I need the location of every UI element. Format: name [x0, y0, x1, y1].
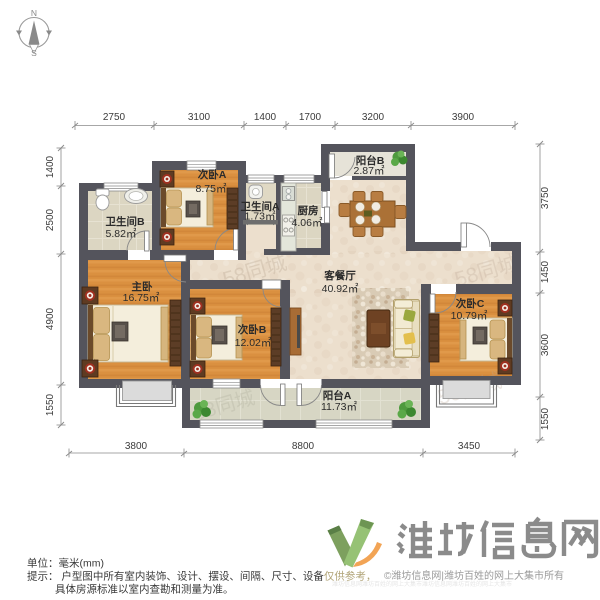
- svg-text:S: S: [31, 48, 37, 58]
- svg-text:4.06㎡: 4.06㎡: [292, 217, 323, 229]
- svg-text:单位：毫米(mm): 单位：毫米(mm): [27, 557, 104, 570]
- svg-text:潍坊信息网潍坊百姓的网上大集市潍坊信息网潍坊百姓的网上大集市: 潍坊信息网潍坊百姓的网上大集市潍坊信息网潍坊百姓的网上大集市: [332, 580, 512, 588]
- svg-text:次卧A: 次卧A: [198, 168, 227, 181]
- svg-text:16.75㎡: 16.75㎡: [123, 292, 160, 304]
- svg-text:11.73㎡: 11.73㎡: [321, 401, 357, 413]
- svg-text:3200: 3200: [362, 112, 385, 123]
- svg-text:3100: 3100: [188, 112, 211, 123]
- svg-text:客餐厅: 客餐厅: [323, 269, 356, 282]
- svg-text:5.82㎡: 5.82㎡: [106, 228, 137, 240]
- svg-text:次卧B: 次卧B: [238, 323, 267, 336]
- svg-text:2.87㎡: 2.87㎡: [354, 165, 385, 177]
- svg-text:3750: 3750: [540, 186, 551, 209]
- svg-text:8800: 8800: [292, 441, 315, 452]
- svg-text:3450: 3450: [458, 441, 481, 452]
- svg-text:8.75㎡: 8.75㎡: [196, 183, 227, 195]
- svg-text:2500: 2500: [45, 208, 56, 231]
- svg-text:1700: 1700: [299, 112, 322, 123]
- svg-text:卫生间B: 卫生间B: [105, 215, 144, 228]
- svg-text:40.92㎡: 40.92㎡: [322, 283, 359, 295]
- svg-text:2750: 2750: [103, 112, 126, 123]
- svg-text:1450: 1450: [540, 260, 551, 283]
- svg-text:1550: 1550: [540, 407, 551, 430]
- svg-text:1.73㎡: 1.73㎡: [245, 211, 276, 223]
- svg-text:©潍坊信息网|潍坊百姓的网上大集市所有: ©潍坊信息网|潍坊百姓的网上大集市所有: [384, 569, 564, 582]
- svg-text:3900: 3900: [452, 112, 475, 123]
- svg-text:次卧C: 次卧C: [456, 297, 485, 310]
- svg-text:12.02㎡: 12.02㎡: [235, 337, 272, 349]
- svg-text:3600: 3600: [540, 333, 551, 356]
- svg-text:1400: 1400: [254, 112, 277, 123]
- svg-text:厨房: 厨房: [298, 204, 319, 217]
- svg-text:1550: 1550: [45, 393, 56, 416]
- svg-text:1400: 1400: [45, 155, 56, 178]
- svg-text:具体房源标准以室内查勘和测量为准。: 具体房源标准以室内查勘和测量为准。: [55, 583, 234, 596]
- svg-text:10.79㎡: 10.79㎡: [451, 310, 488, 322]
- svg-text:4900: 4900: [45, 307, 56, 330]
- svg-text:N: N: [31, 8, 37, 18]
- svg-text:提示： 户型图中所有室内装饰、设计、摆设、间隔、尺寸、设备: 提示： 户型图中所有室内装饰、设计、摆设、间隔、尺寸、设备仅供参考，: [27, 570, 376, 583]
- svg-text:3800: 3800: [125, 441, 148, 452]
